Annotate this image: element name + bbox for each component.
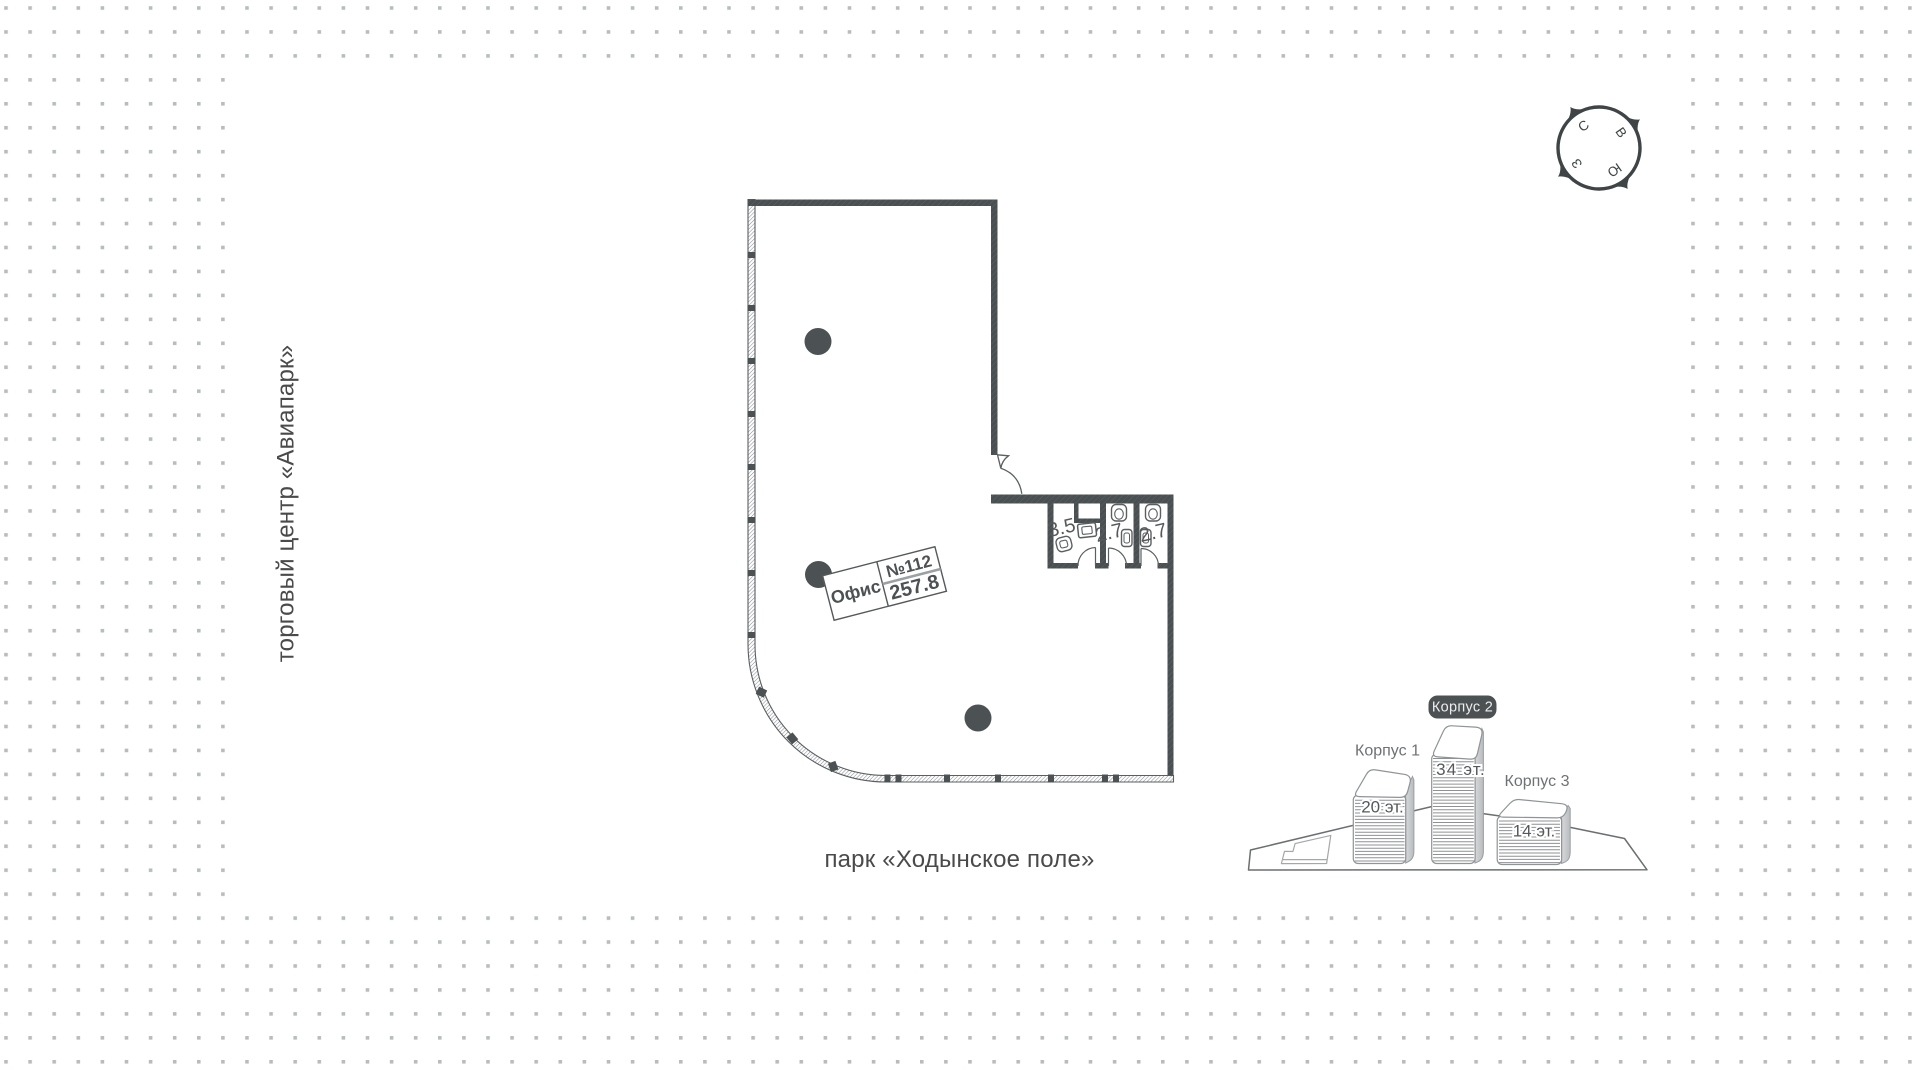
svg-text:34 эт.: 34 эт. [1436,760,1486,779]
svg-text:Корпус 2: Корпус 2 [1432,700,1493,716]
svg-text:20 эт.: 20 эт. [1361,798,1404,817]
svg-text:Корпус 3: Корпус 3 [1505,773,1570,790]
svg-text:Корпус 1: Корпус 1 [1355,743,1420,760]
svg-text:торговый центр «Авиапарк»: торговый центр «Авиапарк» [273,345,300,663]
svg-text:14 эт.: 14 эт. [1513,822,1556,841]
svg-text:парк «Ходынское поле»: парк «Ходынское поле» [824,846,1094,873]
